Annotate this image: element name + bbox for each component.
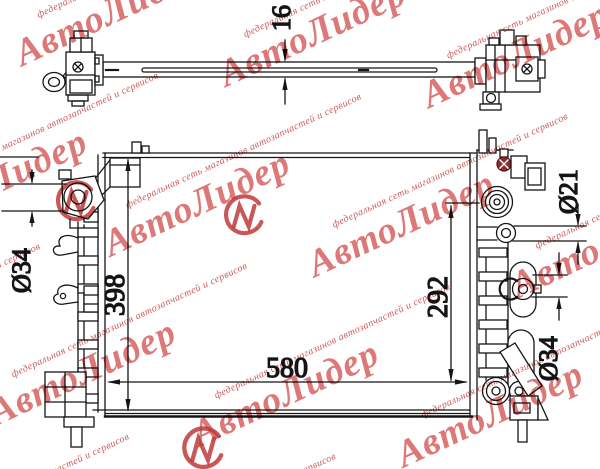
top-view-left-bracket bbox=[43, 31, 103, 106]
drawing-canvas: 16 bbox=[0, 0, 600, 469]
arrow-down-icon bbox=[282, 49, 287, 62]
dim-thickness: 16 bbox=[267, 5, 296, 104]
arrow-down-icon bbox=[556, 263, 561, 275]
right-tank bbox=[477, 130, 548, 442]
dim-width: 580 bbox=[107, 353, 468, 385]
top-view: 16 bbox=[43, 5, 545, 110]
dim-thickness-label: 16 bbox=[267, 5, 296, 31]
dim-port-top-right: Ø21 bbox=[513, 169, 586, 264]
bolt-top-right bbox=[497, 149, 511, 171]
arrow-left-icon bbox=[107, 379, 120, 384]
arrow-up-icon bbox=[575, 241, 580, 253]
filler-cap bbox=[482, 187, 513, 218]
front-view: 398 292 580 bbox=[0, 130, 586, 447]
dim-height-right-label: 292 bbox=[423, 276, 454, 318]
dim-width-label: 580 bbox=[266, 353, 308, 384]
arrow-up-icon bbox=[448, 205, 453, 218]
dim-hole-left: Ø34 bbox=[0, 157, 66, 293]
arrow-down-icon bbox=[448, 369, 453, 382]
dim-port-right: Ø34 bbox=[532, 253, 567, 381]
arrow-right-icon bbox=[455, 379, 468, 384]
arrow-up-icon bbox=[556, 297, 561, 309]
port-34 bbox=[500, 262, 541, 317]
dim-port-top-right-label: Ø21 bbox=[554, 169, 583, 214]
left-foot-block bbox=[45, 372, 94, 447]
top-view-right-bracket bbox=[475, 30, 545, 110]
arrow-up-icon bbox=[29, 211, 34, 223]
top-view-core-bar bbox=[103, 62, 475, 77]
clip-hook bbox=[53, 236, 78, 256]
radiator-technical-drawing: 16 bbox=[0, 0, 600, 469]
port-21 bbox=[477, 224, 516, 243]
arrow-up-icon bbox=[282, 77, 287, 90]
dim-hole-left-label: Ø34 bbox=[7, 248, 36, 293]
arrow-down-icon bbox=[29, 172, 34, 184]
dim-port-right-label: Ø34 bbox=[534, 336, 563, 381]
arrow-down-icon bbox=[575, 214, 580, 226]
dim-height-left-label: 398 bbox=[100, 274, 131, 316]
top-right-bracket bbox=[479, 130, 545, 190]
